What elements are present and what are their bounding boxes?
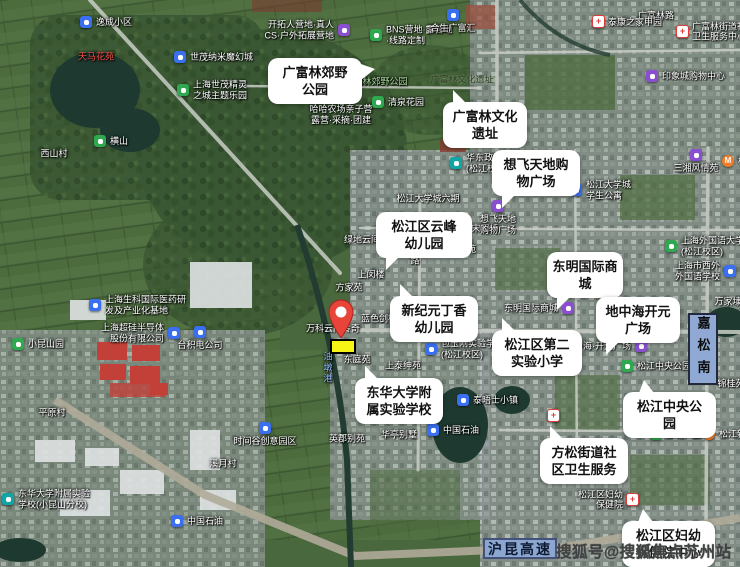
- map-area-label: 西山村: [40, 149, 67, 160]
- map-poi[interactable]: 中国石油: [427, 424, 439, 436]
- poi-dot: [454, 161, 459, 166]
- road-sign: 嘉松南: [688, 313, 718, 385]
- map-poi[interactable]: 中国石油: [171, 515, 183, 527]
- map-poi[interactable]: 上海生科国际医药研发及产业化基地: [89, 299, 101, 311]
- map-callout: 广富林文化遗址: [443, 102, 527, 148]
- location-pin[interactable]: [326, 299, 356, 339]
- poi-dot: [376, 100, 381, 105]
- poi-label: 松江中央公园: [637, 361, 691, 372]
- poi-dot: [694, 153, 699, 158]
- map-callout: 东明国际商城: [547, 252, 623, 298]
- map-callout: 方松街道社区卫生服务: [540, 438, 628, 484]
- callout-tail: [606, 342, 619, 355]
- callout-tail: [502, 195, 515, 208]
- poi-label: 印象城购物中心: [662, 71, 725, 82]
- map-poi[interactable]: 印象城购物中心: [646, 70, 658, 82]
- highway-banner: 沪昆高速: [483, 538, 557, 559]
- map-callout: 想飞天地购物广场: [492, 150, 580, 196]
- blue-poi-icon: [724, 265, 736, 277]
- map-poi[interactable]: 清泉花园: [372, 96, 384, 108]
- map-poi[interactable]: +松江区妇幼保健院: [626, 493, 639, 506]
- poi-dot: [496, 204, 501, 209]
- purple-poi-icon: [646, 70, 658, 82]
- blue-poi-icon: [427, 424, 439, 436]
- poi-dot: [461, 398, 466, 403]
- poi-label: 广富林街道社区卫生服务中心: [692, 21, 740, 42]
- map-poi[interactable]: 世茂纳米魔幻城: [174, 51, 186, 63]
- map-area-label: 上闵楼: [357, 270, 384, 281]
- poi-label: 中国石油: [443, 425, 479, 436]
- map-area-label: 锦桂苑: [717, 379, 740, 390]
- cross-glyph: +: [548, 410, 559, 421]
- poi-label: 泰晤士小镇: [473, 395, 518, 406]
- metro-poi-icon: M: [722, 155, 734, 167]
- poi-label: 哈哈农场亲子营露营·采摘·团建: [309, 104, 372, 125]
- callout-tail: [550, 426, 563, 439]
- map-area-label: 天马花苑: [78, 52, 114, 63]
- poi-dot: [84, 20, 89, 25]
- callout-tail: [557, 297, 570, 310]
- pin-icon: [326, 299, 356, 339]
- poi-dot: [625, 364, 630, 369]
- poi-label: 清泉花园: [388, 97, 424, 108]
- map-poi[interactable]: 时间谷创意园区: [259, 422, 271, 434]
- poi-label: 三湘风情苑: [673, 163, 718, 174]
- map-poi[interactable]: 包玉刚实验学校(松江校区): [425, 343, 437, 355]
- satellite-map[interactable]: 天马花苑西山村三湾里广富林郊野公园广富林文化遗址松江大学城六期宋家桥上闵楼方家苑…: [0, 0, 740, 567]
- callout-tail: [386, 257, 399, 270]
- poi-label: 上海超硅半导体股份有限公司: [101, 323, 164, 344]
- metro-glyph: M: [722, 155, 734, 167]
- blue-poi-icon: [447, 9, 459, 21]
- poi-label: 合生广富汇: [430, 23, 475, 34]
- map-poi[interactable]: 上海超硅半导体股份有限公司: [168, 327, 180, 339]
- map-poi[interactable]: BNS营地·露营地·线路定制: [370, 29, 382, 41]
- map-callout: 新纪元丁香幼儿园: [390, 296, 478, 342]
- blue-poi-icon: [171, 515, 183, 527]
- poi-dot: [639, 344, 644, 349]
- poi-dot: [172, 331, 177, 336]
- blue-poi-icon: [194, 326, 206, 338]
- poi-label: 台积电公司: [177, 340, 222, 351]
- blue-poi-icon: [89, 299, 101, 311]
- purple-poi-icon: [690, 149, 702, 161]
- poi-label: 上海外国语大学(松江校区): [681, 236, 740, 257]
- poi-label: 泰康之家申园: [608, 16, 662, 27]
- poi-dot: [429, 347, 434, 352]
- map-area-label: 松江大学城六期: [396, 194, 459, 205]
- blue-poi-icon: [457, 394, 469, 406]
- map-area-label: 方家苑: [335, 283, 362, 294]
- poi-label: 小昆山园: [28, 339, 64, 350]
- blue-poi-icon: [168, 327, 180, 339]
- callout-tail: [365, 366, 378, 379]
- poi-dot: [6, 497, 11, 502]
- map-poi[interactable]: 合生广富汇: [447, 9, 459, 21]
- callout-tail: [361, 64, 375, 80]
- poi-label: 上海市西外外国语学校: [675, 261, 720, 282]
- poi-dot: [181, 88, 186, 93]
- map-poi[interactable]: 上海外国语大学(松江校区): [665, 240, 677, 252]
- callout-tail: [400, 284, 413, 297]
- map-area-label: 华亭别墅: [381, 430, 417, 441]
- hospital-poi-icon: +: [676, 25, 689, 38]
- park-poi-icon: [621, 360, 633, 372]
- park-poi-icon: [665, 240, 677, 252]
- park-poi-icon: [12, 338, 24, 350]
- poi-label: 东明国际商城: [504, 303, 558, 314]
- poi-dot: [263, 426, 268, 431]
- cross-glyph: +: [627, 494, 638, 505]
- map-callout: 地中海开元广场: [596, 297, 680, 343]
- map-poi[interactable]: 开拓人营地·真人CS·户外拓展营地: [338, 24, 350, 36]
- map-callout: 松江中央公园: [623, 392, 716, 438]
- poi-label: 松江区妇幼保健院: [578, 489, 623, 510]
- watermark: 搜狐号@搜狐焦点苏州站: [556, 540, 732, 562]
- map-poi[interactable]: 台积电公司: [194, 326, 206, 338]
- poi-dot: [728, 269, 733, 274]
- blue-poi-icon: [80, 16, 92, 28]
- park-poi-icon: [370, 29, 382, 41]
- blue-poi-icon: [425, 343, 437, 355]
- poi-label: 想飞天地购物广场: [480, 214, 516, 235]
- map-poi[interactable]: 东华大学附属实验学校(小昆山分校): [2, 493, 14, 505]
- poi-dot: [93, 303, 98, 308]
- map-poi[interactable]: 松江中央公园: [621, 360, 633, 372]
- hospital-poi-icon: +: [547, 409, 560, 422]
- map-poi[interactable]: 小昆山园: [12, 338, 24, 350]
- school-poi-icon: [450, 157, 462, 169]
- poi-label: 上海生科国际医药研发及产业化基地: [105, 295, 186, 316]
- blue-poi-icon: [259, 422, 271, 434]
- park-poi-icon: [94, 135, 106, 147]
- poi-dot: [178, 55, 183, 60]
- map-poi[interactable]: 上海市西外外国语学校: [724, 265, 736, 277]
- map-area-label: 广富林文化遗址: [430, 75, 493, 86]
- map-callout: 东华大学附属实验学校: [355, 378, 443, 424]
- map-poi[interactable]: +泰康之家申园: [592, 15, 605, 28]
- poi-label: 横山: [110, 136, 128, 147]
- map-area-label: 上泰绅苑: [385, 361, 421, 372]
- map-area-label: 平原村: [38, 408, 65, 419]
- park-poi-icon: [372, 96, 384, 108]
- poi-label: 世茂纳米魔幻城: [190, 52, 253, 63]
- map-area-label: 万家埭: [714, 297, 740, 308]
- cross-glyph: +: [593, 16, 604, 27]
- purple-poi-icon: [338, 24, 350, 36]
- map-callout: 广富林郊野公园: [268, 58, 362, 104]
- map-poi[interactable]: 逸成小区: [80, 16, 92, 28]
- map-poi[interactable]: 三湘风情苑: [690, 149, 702, 161]
- poi-dot: [98, 139, 103, 144]
- map-area-label: 溪月村: [209, 459, 236, 470]
- highlighted-plot[interactable]: [330, 339, 356, 354]
- poi-dot: [198, 330, 203, 335]
- map-poi[interactable]: 上海世茂精灵之城主题乐园: [177, 84, 189, 96]
- poi-dot: [342, 28, 347, 33]
- poi-dot: [669, 244, 674, 249]
- callout-tail: [638, 509, 653, 522]
- map-poi[interactable]: +: [547, 409, 560, 422]
- poi-label: 逸成小区: [96, 17, 132, 28]
- hospital-poi-icon: +: [592, 15, 605, 28]
- poi-dot: [175, 519, 180, 524]
- map-area-label: 东庭苑: [343, 355, 370, 366]
- poi-label: 开拓人营地·真人CS·户外拓展营地: [265, 20, 335, 41]
- poi-dot: [431, 428, 436, 433]
- poi-label: 时间谷创意园区: [233, 436, 296, 447]
- callout-tail: [453, 90, 466, 103]
- poi-dot: [374, 33, 379, 38]
- callout-tail: [502, 318, 515, 331]
- blue-poi-icon: [174, 51, 186, 63]
- map-poi[interactable]: +广富林街道社区卫生服务中心: [676, 25, 689, 38]
- school-poi-icon: [2, 493, 14, 505]
- map-poi[interactable]: M松江大学城: [722, 155, 734, 167]
- cross-glyph: +: [677, 26, 688, 37]
- map-poi[interactable]: 华东政法大学(松江校区): [450, 157, 462, 169]
- hospital-poi-icon: +: [626, 493, 639, 506]
- callout-tail: [639, 380, 654, 393]
- map-poi[interactable]: 横山: [94, 135, 106, 147]
- park-poi-icon: [177, 84, 189, 96]
- poi-dot: [451, 13, 456, 18]
- poi-label: 上海世茂精灵之城主题乐园: [193, 80, 247, 101]
- poi-label: 松江大学城学生公寓: [586, 180, 631, 201]
- map-callout: 松江区第二实验小学: [492, 330, 582, 376]
- poi-dot: [16, 342, 21, 347]
- map-area-label: 油墩港: [322, 352, 333, 385]
- map-poi[interactable]: 泰晤士小镇: [457, 394, 469, 406]
- poi-label: 东华大学附属实验学校(小昆山分校): [18, 489, 90, 510]
- poi-label: 中国石油: [187, 516, 223, 527]
- poi-label: 松江新城: [719, 429, 740, 440]
- map-callout: 松江区云峰幼儿园: [376, 212, 472, 258]
- poi-dot: [650, 74, 655, 79]
- map-area-label: 英郡别苑: [329, 434, 365, 445]
